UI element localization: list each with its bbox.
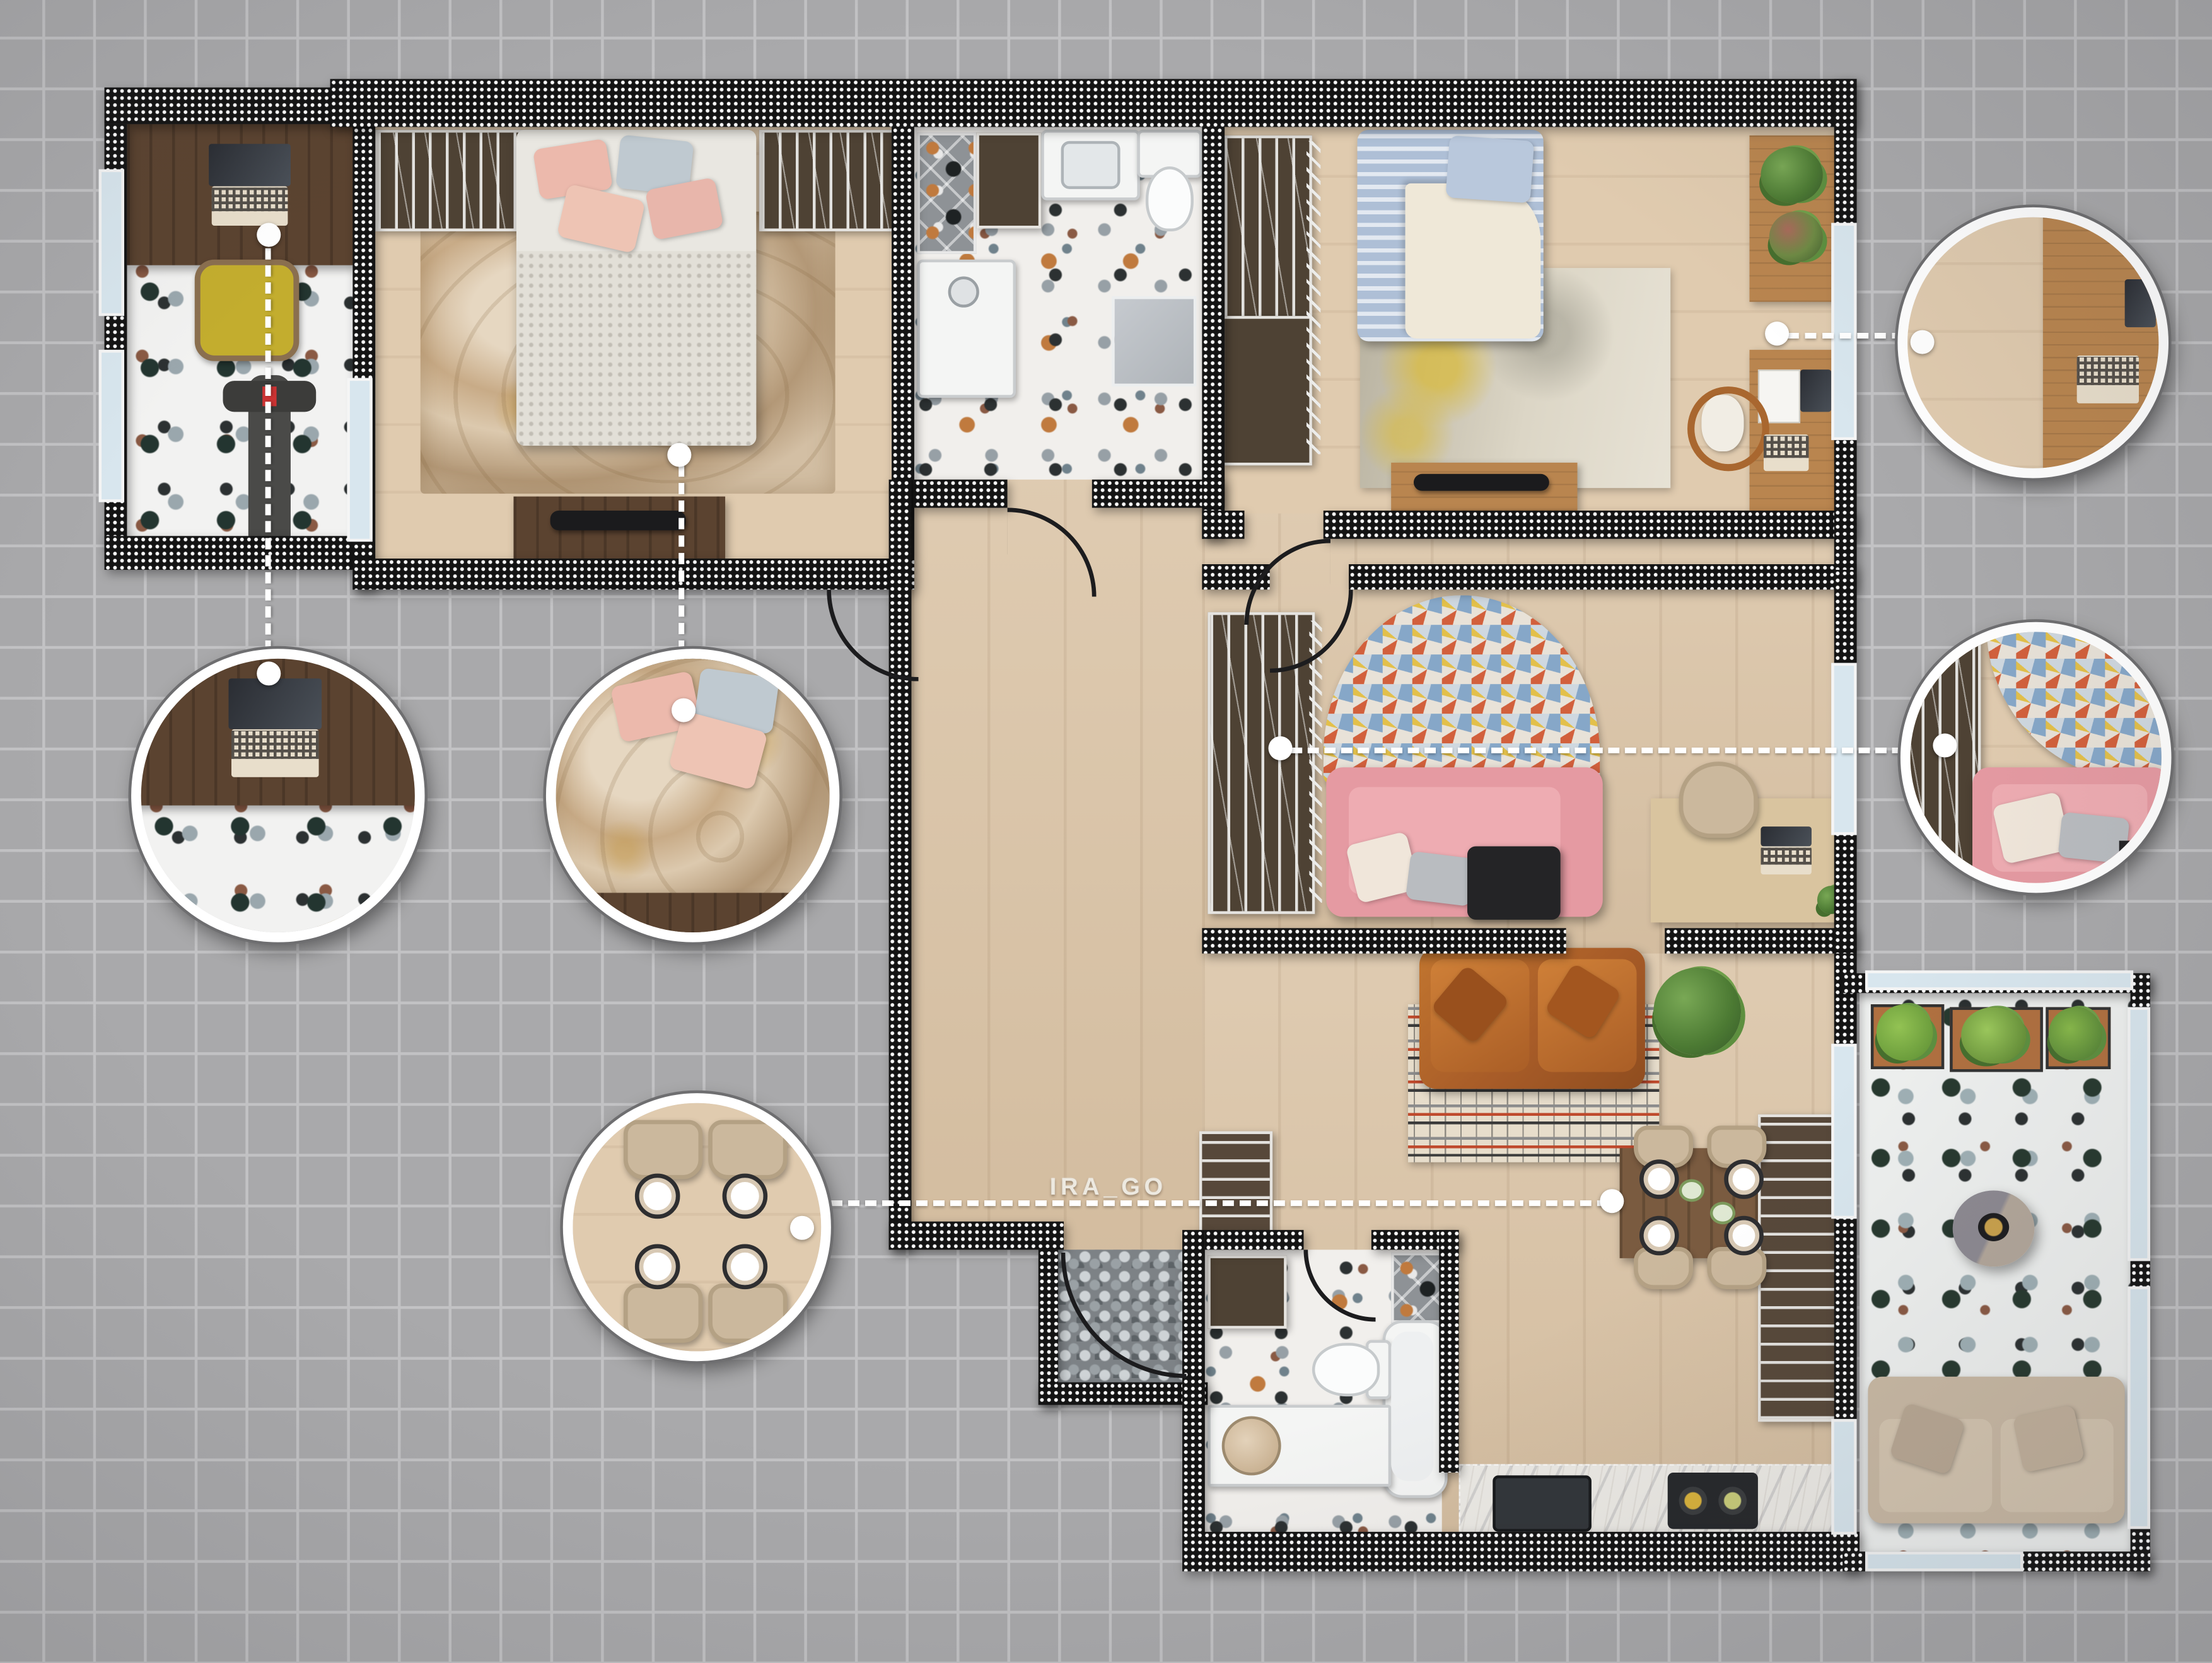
- bedroom2-wardrobe-top: [1222, 136, 1312, 322]
- wall-bedroom2-bottom-right: [1324, 511, 1857, 539]
- wall-bathroom2-right: [1439, 1230, 1458, 1473]
- callout-laptop-screen: [228, 678, 322, 729]
- toilet-bowl: [1146, 166, 1194, 231]
- callout-chair-2: [708, 1120, 787, 1179]
- window-balcony-bottom-glass: [1865, 1551, 2023, 1571]
- pouf-tray: [1978, 1213, 2009, 1241]
- laptop-keyboard: [212, 186, 288, 226]
- desk-notebook: [1800, 369, 1831, 412]
- planter-greens-1: [1877, 1004, 1933, 1061]
- master-tv: [550, 511, 686, 530]
- window-loggia-1: [99, 170, 124, 316]
- window-balcony-top-glass: [1865, 970, 2133, 990]
- shower-head: [948, 277, 979, 308]
- plate-2: [1724, 1159, 1764, 1199]
- bathroom-cabinet: [976, 132, 1041, 228]
- callout-master-bed: [546, 649, 839, 942]
- callout-laptop-keyboard: [231, 729, 319, 777]
- balcony-door-glass: [1831, 1419, 1856, 1534]
- connector-line-loggia: [265, 248, 271, 652]
- callout-dining-table: [563, 1093, 831, 1361]
- window-bedroom2: [1831, 223, 1856, 441]
- wall-top-main: [330, 79, 1857, 127]
- study-pillow-gray: [1406, 851, 1476, 907]
- callout-bed-footboard: [556, 893, 830, 932]
- planter-greens-3: [2049, 1007, 2102, 1061]
- hall-cabinet: [1199, 1131, 1272, 1238]
- callout-desk-screen: [2125, 279, 2156, 327]
- white-chair-seat: [1701, 395, 1743, 452]
- wardrobe-open-doors: [1307, 141, 1320, 455]
- callout-sofa-side-table: [2119, 841, 2165, 886]
- callout-chair-4: [708, 1283, 787, 1343]
- bedroom2-tv: [1414, 474, 1549, 491]
- wall-study-bottom-left: [1202, 928, 1566, 953]
- wall-bedroom2-bottom-left: [1202, 511, 1244, 539]
- connector-line-dining: [814, 1200, 1609, 1206]
- bath-mat: [1112, 296, 1196, 386]
- callout-plate-2: [723, 1174, 768, 1219]
- wardrobe-right: [759, 130, 897, 231]
- kitchen-sink: [1493, 1475, 1592, 1532]
- study-wardrobe-doors: [1309, 621, 1322, 903]
- wall-corridor-bottom: [889, 1222, 1064, 1250]
- connector-dot-desk: [1765, 322, 1789, 345]
- study-side-table: [1467, 847, 1561, 920]
- wall-loggia-bottom: [105, 536, 356, 570]
- window-living-balcony: [1831, 1044, 1856, 1219]
- plate-3: [1639, 1216, 1679, 1256]
- wall-bathroom2-top-left: [1205, 1230, 1304, 1249]
- connector-dot-bed: [667, 443, 691, 467]
- wall-study-top-right: [1349, 564, 1857, 589]
- wall-loggia-top: [105, 88, 356, 124]
- callout-bed-dot: [672, 698, 696, 722]
- living-plant: [1653, 968, 1741, 1055]
- study-laptop-body: [1761, 847, 1812, 875]
- connector-line-bed: [678, 465, 684, 651]
- callout-study-sofa: [1901, 622, 2172, 893]
- wall-bathroom-bottom-left: [914, 480, 1008, 508]
- connector-dot-dining: [1600, 1189, 1624, 1213]
- watermark-text: IRA_GO: [1050, 1174, 1167, 1202]
- plant-on-sideboard-1: [1761, 147, 1822, 203]
- callout-plate-4: [723, 1244, 768, 1289]
- window-master-bedroom: [347, 378, 372, 542]
- connector-line-desk: [1788, 333, 1903, 339]
- bedroom2-wardrobe-bottom: [1222, 316, 1312, 465]
- bedroom2-laptop: [1764, 434, 1809, 471]
- bathtub-inner: [1391, 1331, 1433, 1481]
- plate-1: [1639, 1159, 1679, 1199]
- callout-wardrobe-strip: [1902, 623, 1981, 893]
- connector-dot-loggia: [257, 223, 281, 247]
- window-loggia-2: [99, 350, 124, 502]
- sink-basin: [1061, 141, 1121, 189]
- wall-bottom-main: [1182, 1532, 1860, 1572]
- callout-bedroom2-desk: [1897, 207, 2168, 478]
- wall-bathroom-bedroom2: [1202, 127, 1225, 538]
- callout-chair-3: [624, 1283, 702, 1343]
- window-balcony-right-2: [2128, 1287, 2150, 1529]
- toilet2-bowl: [1312, 1343, 1380, 1396]
- laptop-screen: [209, 144, 291, 186]
- pan-1: [1679, 1486, 1708, 1515]
- connector-dot-sofa: [1269, 736, 1293, 760]
- callout-desk-dot: [1911, 330, 1935, 354]
- connector-line-sofa: [1291, 748, 1903, 753]
- pan-2: [1718, 1486, 1747, 1515]
- callout-sofa-dot: [1933, 734, 1957, 758]
- yellow-chair: [195, 260, 300, 361]
- callout-desk-laptop: [2077, 356, 2139, 403]
- study-chair: [1679, 762, 1758, 838]
- callout-plate-3: [635, 1244, 680, 1289]
- table-flowers-1: [1679, 1179, 1704, 1202]
- wall-bedroom-bottom: [352, 559, 914, 589]
- callout-chair-1: [624, 1120, 702, 1179]
- master-bed-duvet: [516, 251, 756, 446]
- callout-plate-1: [635, 1174, 680, 1219]
- wall-study-bottom-right: [1665, 928, 1856, 953]
- table-flowers-2: [1710, 1202, 1735, 1224]
- plant-on-sideboard-2: [1769, 212, 1823, 263]
- callout-desk-top: [2043, 207, 2168, 478]
- study-laptop-screen: [1761, 826, 1812, 846]
- planter-greens-2: [1961, 1007, 2026, 1064]
- shower-niche: [917, 132, 976, 253]
- round-vessel-sink: [1222, 1416, 1281, 1475]
- window-balcony-right-1: [2128, 1007, 2150, 1261]
- bathroom2-shower-niche: [1391, 1253, 1445, 1323]
- callout-loggia-desk: [131, 649, 424, 942]
- floorplan-stage: IRA_GO: [0, 0, 2212, 1663]
- callout-dining-dot: [790, 1216, 814, 1240]
- callout-loggia-dot: [257, 661, 281, 685]
- bedroom2-pillow: [1445, 136, 1534, 204]
- bedroom2-duvet-fold: [1406, 183, 1541, 339]
- wall-vestibule-left: [1039, 1249, 1058, 1405]
- bathroom2-cabinet: [1208, 1255, 1286, 1328]
